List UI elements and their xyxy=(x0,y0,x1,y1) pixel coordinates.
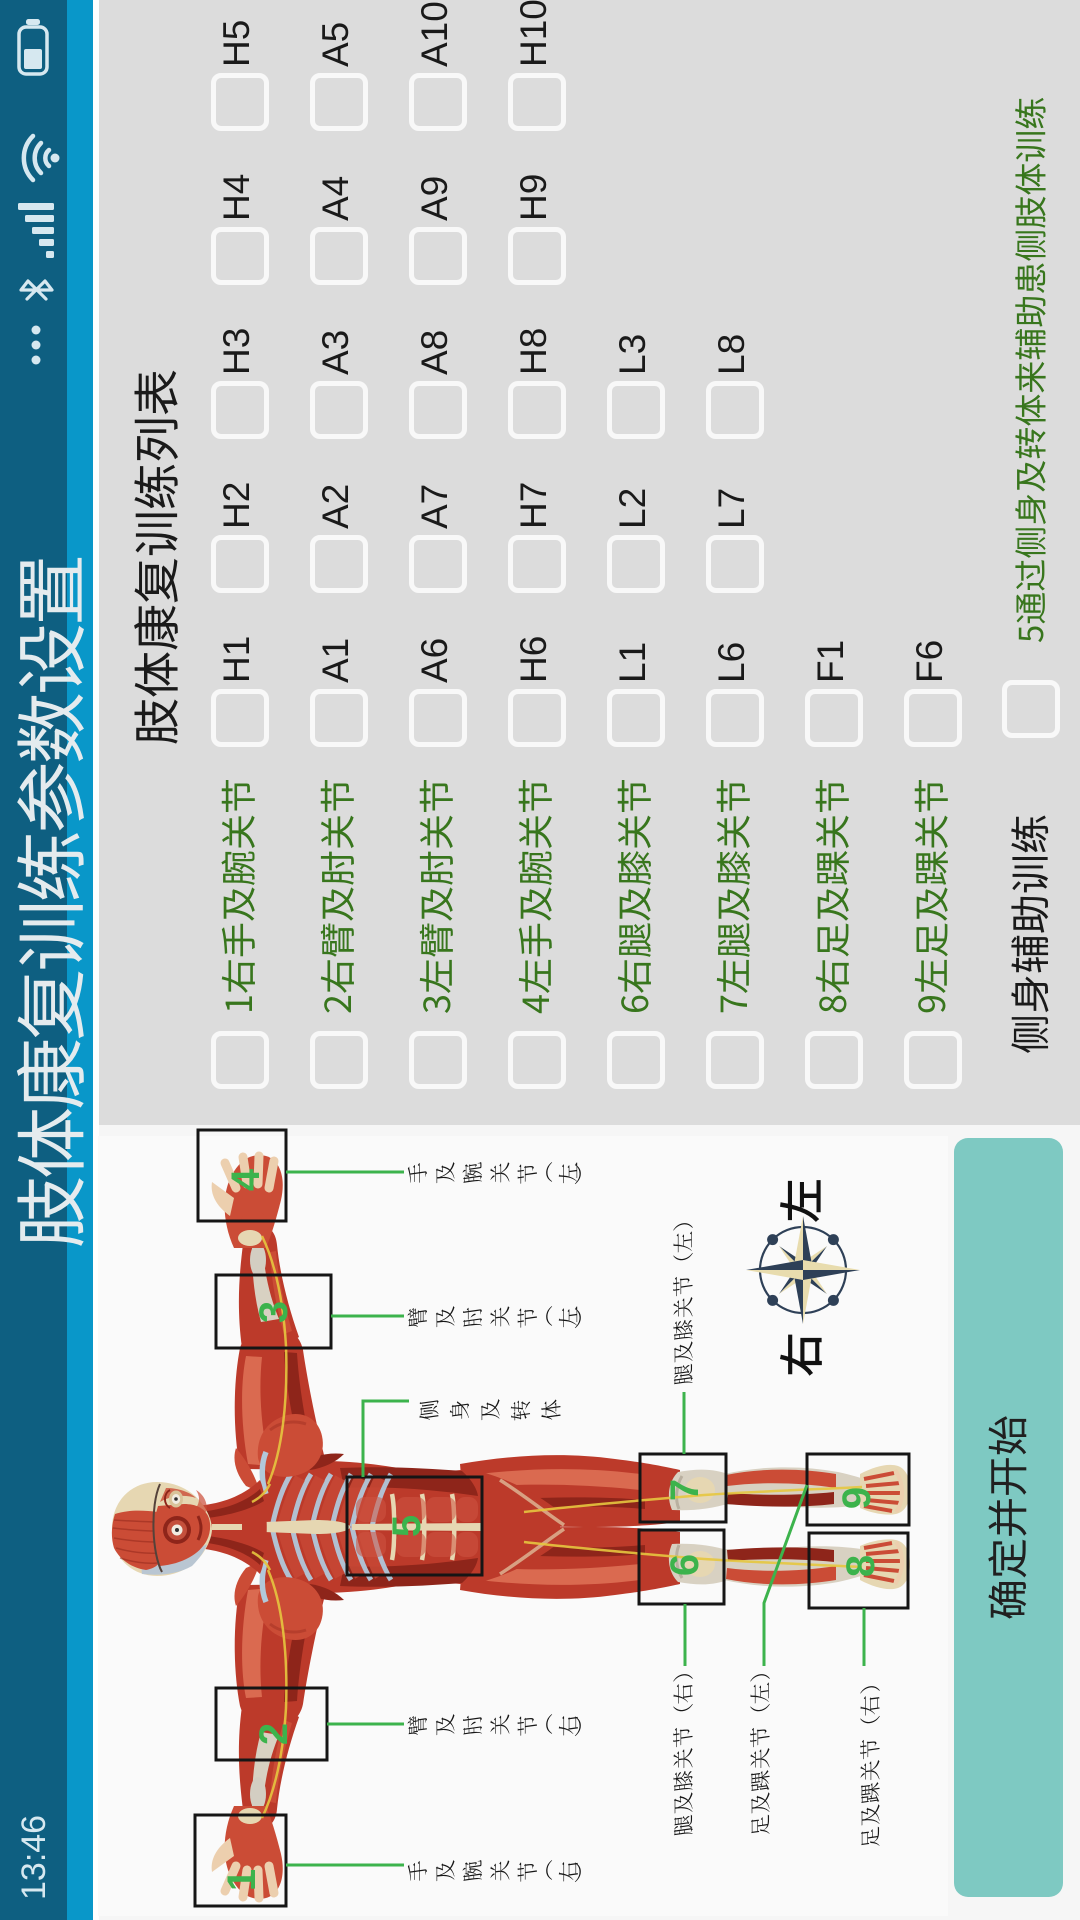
svg-text:5: 5 xyxy=(385,1515,429,1537)
svg-text:8: 8 xyxy=(839,1555,883,1577)
svg-text:9: 9 xyxy=(835,1487,879,1509)
svg-text:3: 3 xyxy=(252,1301,296,1323)
svg-text:1: 1 xyxy=(220,1869,264,1891)
svg-text:2: 2 xyxy=(252,1723,296,1745)
svg-text:6: 6 xyxy=(663,1554,707,1576)
svg-text:4: 4 xyxy=(224,1168,268,1191)
svg-text:7: 7 xyxy=(663,1479,707,1501)
